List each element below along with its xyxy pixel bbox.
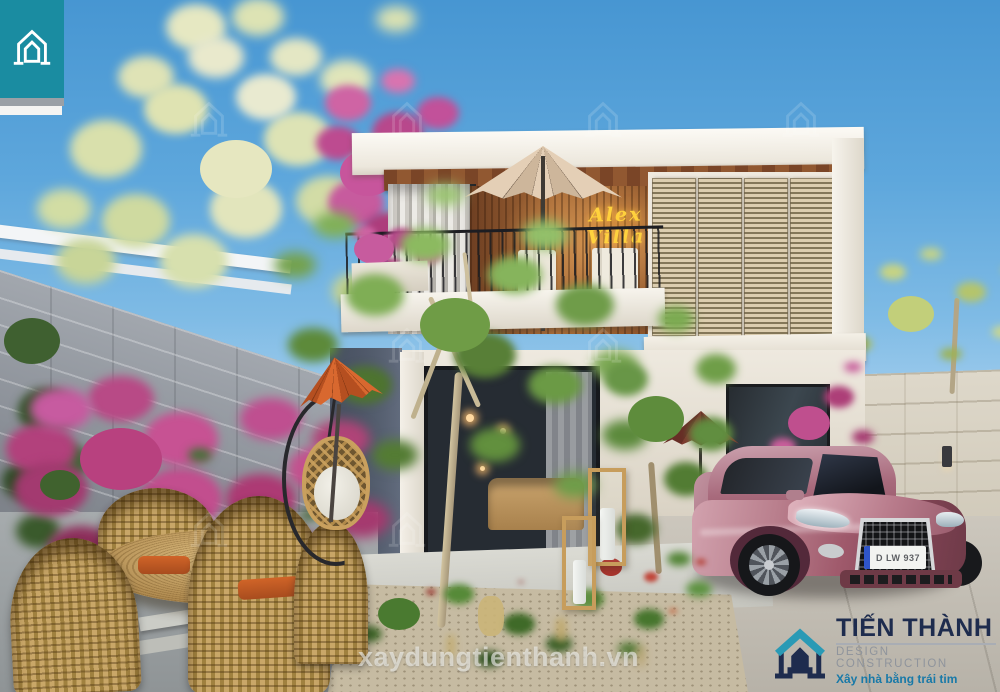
car-hubcap [764, 560, 774, 570]
blossom-tree-left [200, 140, 272, 198]
floor-lantern [562, 516, 596, 610]
watermark-house-icon [186, 96, 232, 140]
footer-logo-tagline: Xây nhà bằng trái tim [836, 672, 996, 686]
car-bumper-vents [850, 575, 952, 584]
car-headlight-right [936, 512, 964, 527]
bougainvillea-greenery [40, 470, 80, 500]
watermark-house-icon [384, 96, 430, 140]
car-mirror [786, 490, 804, 500]
corner-logo-bar [0, 98, 64, 106]
corner-logo [0, 0, 64, 98]
car-side-window [720, 458, 814, 494]
house-icon [770, 619, 830, 683]
license-plate: D LW 937 [864, 546, 926, 569]
chair-cushion [138, 556, 190, 574]
footer-logo: TIẾN THÀNH DESIGN CONSTRUCTION Xây nhà b… [770, 614, 996, 688]
bed-grasses [478, 596, 504, 636]
green-tree-center [420, 298, 490, 352]
watermark-house-icon [186, 506, 232, 550]
car-wheel-left [738, 534, 800, 596]
watermark-house-icon [580, 96, 626, 140]
balcony-planter-box [351, 261, 428, 294]
louver-panel [790, 178, 834, 338]
bougainvillea-left [80, 428, 162, 490]
corner-logo-bar [0, 106, 62, 115]
louver-panel [698, 178, 742, 360]
watermark-house-icon [778, 96, 824, 140]
plate-text: D LW 937 [870, 553, 926, 563]
footer-logo-subtitle: DESIGN CONSTRUCTION [836, 643, 996, 670]
watermark-house-icon [384, 506, 430, 550]
watermark-url: xaydungtienthanh.vn [358, 642, 639, 673]
candle [600, 508, 615, 560]
watermark-house-icon [580, 322, 626, 366]
balcony-planter-flowers [354, 234, 394, 264]
yellow-tree-right [888, 296, 934, 332]
bed-plants [378, 598, 420, 630]
dark-green-left-edge [4, 318, 60, 364]
house-icon [9, 22, 55, 70]
watermark-house-icon [384, 322, 430, 366]
render-canvas: Alex Villa [0, 0, 1000, 692]
car: D LW 937 [690, 438, 970, 613]
pink-bush-right [788, 406, 830, 440]
footer-logo-name: TIẾN THÀNH [836, 616, 996, 641]
green-tree-right [628, 396, 684, 442]
egg-chair-cushion [314, 466, 360, 520]
candle [573, 560, 586, 604]
